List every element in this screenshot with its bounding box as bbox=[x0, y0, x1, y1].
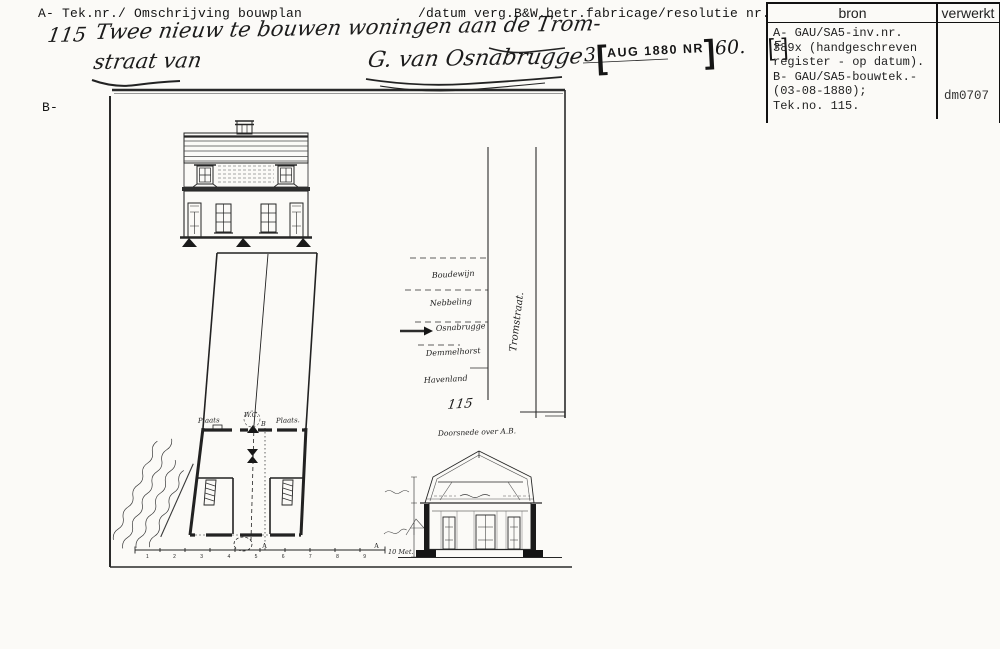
cross-section bbox=[384, 451, 562, 558]
section-interior-label-scribble bbox=[460, 495, 490, 498]
neighbor-2: Nebbeling bbox=[429, 297, 473, 308]
stamp-date-text: AUG 1880 NR bbox=[607, 41, 705, 60]
bron-line: 389x (handgeschreven bbox=[773, 41, 999, 56]
stairs-right bbox=[282, 480, 293, 505]
applicant-signature: G. van Osnabrugge bbox=[366, 44, 585, 73]
neighbor-1: Boudewijn bbox=[431, 269, 475, 280]
section-door-right bbox=[508, 517, 520, 549]
facade-elevation bbox=[180, 121, 312, 247]
situation-sheet-number: 115 bbox=[447, 396, 474, 413]
verwerkt-value: dm0707 bbox=[944, 89, 989, 104]
yard-left-label: Plaats bbox=[197, 416, 220, 425]
site-plan bbox=[135, 253, 385, 554]
section-marker-a2: A bbox=[374, 542, 379, 550]
section-marker-a: A bbox=[262, 542, 267, 550]
stairs-left bbox=[204, 480, 216, 505]
table-header-row: bron verwerkt bbox=[768, 4, 999, 23]
wc-label: W.C. bbox=[244, 411, 258, 419]
section-door-left bbox=[443, 517, 455, 549]
bron-line: register - op datum). bbox=[773, 55, 999, 70]
section-door-center bbox=[476, 515, 495, 549]
tek-nr-handwritten: 115 bbox=[46, 22, 88, 47]
dormer-right bbox=[274, 165, 298, 187]
bron-line: B- GAU/SA5-bouwtek.- bbox=[773, 70, 999, 85]
register-table: bron verwerkt A- GAU/SA5-inv.nr. 389x (h… bbox=[766, 2, 1000, 123]
neighbor-4: Demmelhorst bbox=[425, 346, 482, 358]
table-body: A- GAU/SA5-inv.nr. 389x (handgeschreven … bbox=[768, 23, 999, 123]
yard-right-label: Plaats. bbox=[275, 416, 300, 425]
street-name: Tromstraat. bbox=[508, 291, 526, 352]
dormer-left bbox=[193, 165, 217, 187]
plan-labels: Plaats W.C. B Plaats. A A 1 2 3 4 5 6 7 … bbox=[146, 411, 414, 560]
b-label: B bbox=[260, 420, 266, 428]
bron-line: A- GAU/SA5-inv.nr. bbox=[773, 26, 999, 41]
column-header-verwerkt: verwerkt bbox=[937, 5, 999, 21]
neighbor-5: Havenland bbox=[423, 374, 468, 385]
scale-numbers: 1 2 3 4 5 6 7 8 9 bbox=[146, 554, 366, 560]
scale-unit-label: 10 Met. bbox=[388, 548, 414, 556]
handwritten-margin-note bbox=[110, 433, 199, 561]
description-line2: straat van bbox=[92, 48, 203, 74]
section-label-b: B- bbox=[42, 100, 58, 115]
stamp-number: 60. bbox=[714, 36, 745, 60]
neighbor-3: Osnabrugge bbox=[436, 321, 486, 333]
section-title: Doorsnede over A.B. bbox=[437, 426, 517, 438]
scale-bar bbox=[135, 547, 385, 554]
column-header-bron: bron bbox=[768, 5, 937, 21]
